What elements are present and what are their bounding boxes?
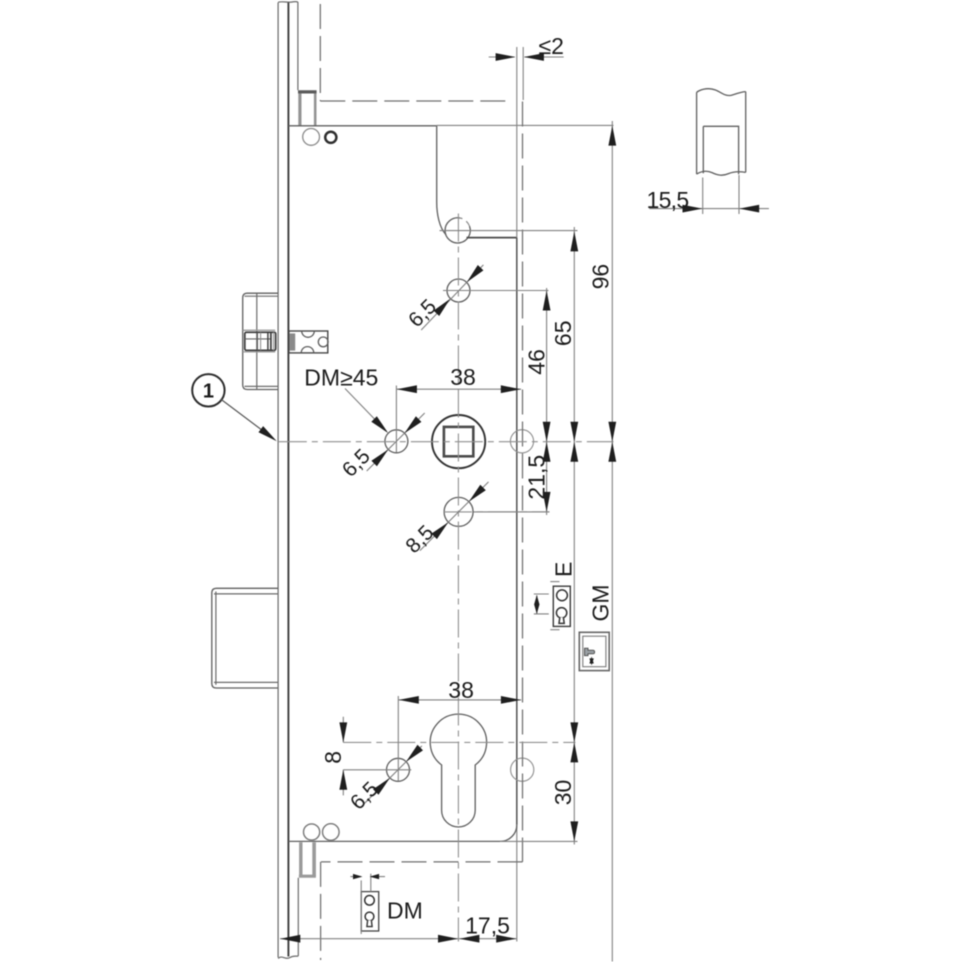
svg-text:96: 96 [588,264,614,290]
svg-text:1: 1 [203,381,214,403]
svg-text:38: 38 [448,677,474,703]
svg-text:E: E [551,562,577,577]
svg-text:17,5: 17,5 [465,913,510,939]
svg-text:38: 38 [450,364,476,390]
svg-text:46: 46 [524,349,550,375]
svg-text:≤2: ≤2 [539,33,564,59]
svg-text:DM: DM [387,898,423,924]
svg-text:8: 8 [320,751,346,764]
svg-text:21,5: 21,5 [524,455,550,500]
svg-text:GM: GM [587,584,613,621]
svg-text:DM≥45: DM≥45 [304,365,378,391]
svg-text:30: 30 [550,780,576,806]
svg-text:15,5: 15,5 [647,187,689,213]
svg-text:65: 65 [550,321,576,347]
